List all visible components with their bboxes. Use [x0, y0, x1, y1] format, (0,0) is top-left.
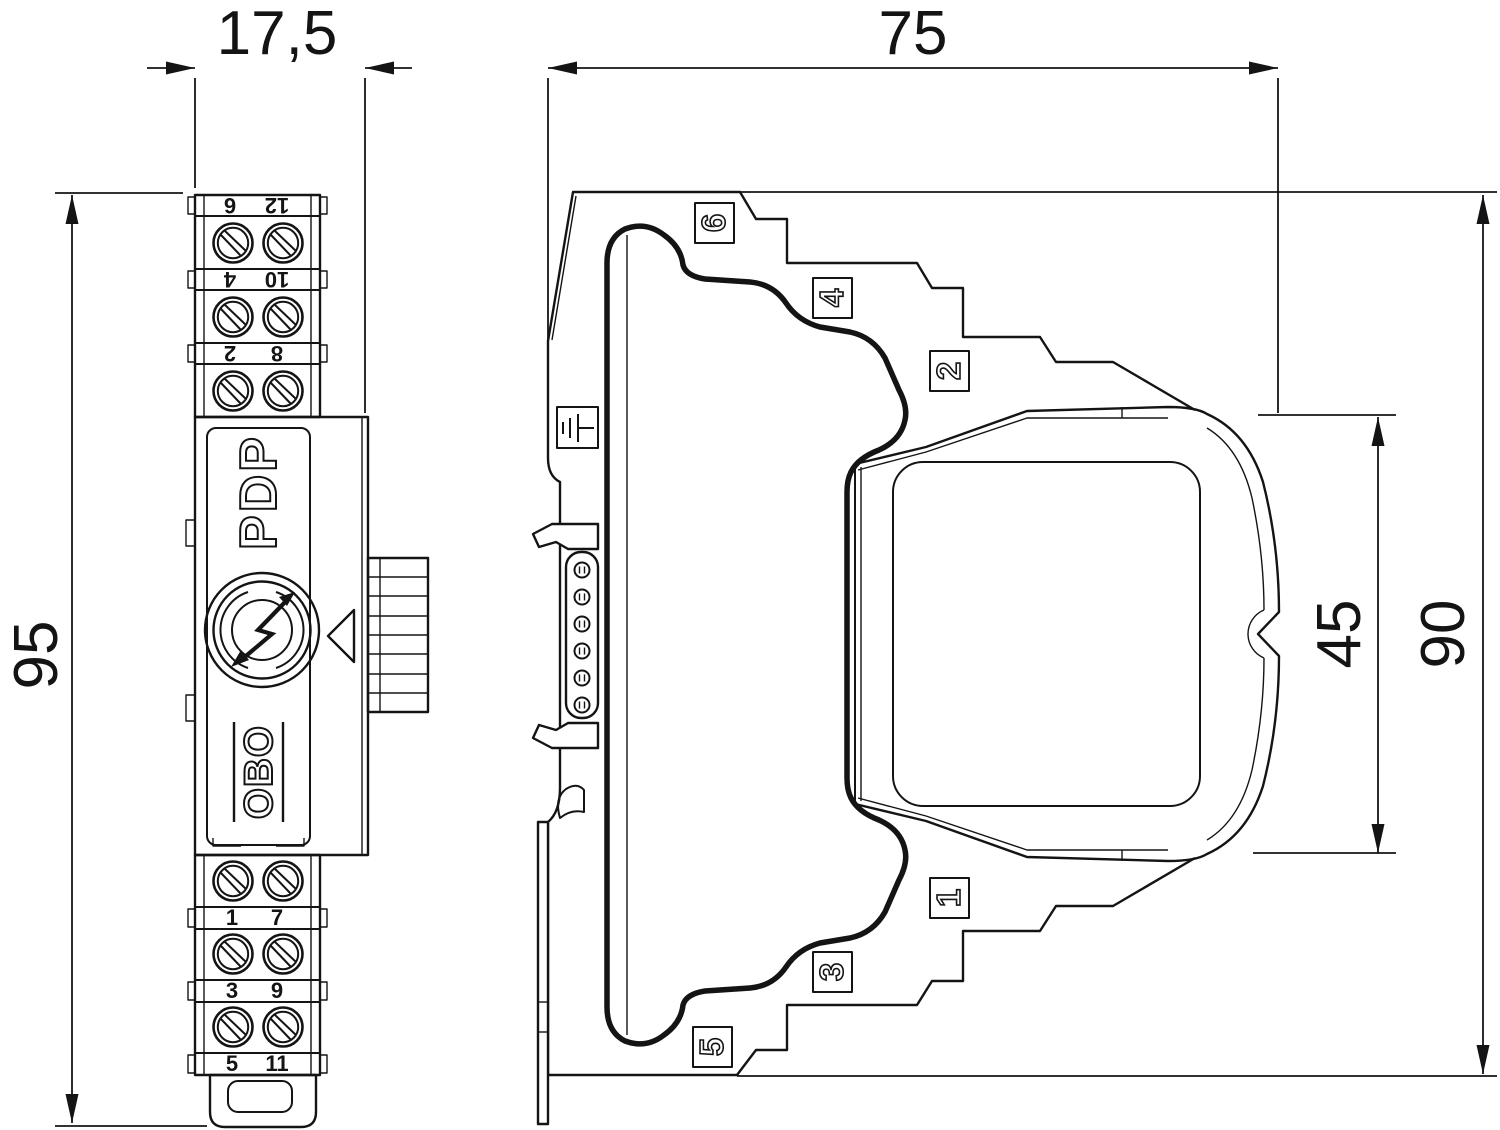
arrowhead: [66, 195, 79, 224]
terminal-marker-box: 1: [930, 878, 969, 918]
screw-icon: [264, 935, 303, 974]
terminal-label: 4: [223, 267, 236, 292]
screw-icon: [214, 298, 253, 337]
surge-arrow-logo-icon: [205, 573, 319, 687]
earth-icon: [557, 407, 598, 448]
terminal-marker-box: 3: [813, 952, 852, 992]
screw-icon: [214, 224, 253, 263]
screw-icon: [264, 224, 303, 263]
terminal-block-bottom: 1 7 3 9 5 11: [188, 855, 327, 1076]
terminal-label: 12: [265, 193, 289, 218]
dim-front-height: 95: [2, 193, 207, 1126]
terminal-label: 5: [226, 1051, 238, 1076]
side-view: 6 4 2 1 3 5: [533, 192, 1279, 1124]
marker-label: 3: [813, 963, 850, 981]
screw-icon: [214, 1008, 253, 1047]
plug-connector-teeth: [368, 558, 428, 712]
dim-label: 75: [879, 0, 948, 68]
din-clip-lower-icon: [533, 723, 598, 748]
marker-label: 5: [693, 1038, 730, 1056]
terminal-marker-box: 6: [695, 203, 734, 243]
front-view: 6 12 4 10 2 8: [186, 193, 428, 1127]
terminal-label: 1: [226, 905, 238, 930]
arrowhead: [365, 62, 394, 75]
terminal-label: 10: [265, 267, 289, 292]
marker-label: 4: [813, 288, 850, 307]
arrowhead: [166, 62, 195, 75]
arrowhead: [1372, 824, 1385, 853]
terminal-label: 2: [224, 341, 236, 366]
terminal-label: 9: [271, 978, 283, 1003]
terminal-label: 3: [226, 978, 238, 1003]
terminal-label: 11: [265, 1051, 288, 1076]
dim-side-height: 90: [737, 192, 1497, 1076]
terminal-marker-box: 4: [813, 278, 852, 318]
contact-strip: [566, 552, 598, 718]
device-body: PDP OBO: [186, 417, 428, 855]
screw-icon: [264, 372, 303, 411]
drawing-canvas: 6 12 4 10 2 8: [0, 0, 1500, 1130]
screw-icon: [214, 372, 253, 411]
dim-label: 17,5: [217, 0, 338, 68]
screw-icon: [264, 298, 303, 337]
screw-icon: [214, 935, 253, 974]
arrowhead: [1249, 62, 1278, 75]
marker-label: 2: [930, 362, 967, 380]
slide-latch: [538, 822, 548, 1124]
brand-text: OBO: [237, 725, 281, 819]
screw-icon: [264, 862, 303, 901]
terminal-label: 8: [271, 341, 283, 366]
housing-outline: [548, 192, 1195, 1075]
plug-module: [855, 407, 1279, 861]
dim-module-height: 45: [1253, 415, 1396, 853]
product-name-text: PDP: [230, 434, 288, 550]
arrowhead: [1477, 195, 1490, 224]
arrowhead: [1372, 417, 1385, 446]
arrowhead: [1477, 1045, 1490, 1074]
terminal-marker-box: 2: [930, 351, 969, 391]
arrowhead: [548, 62, 577, 75]
screw-icon: [214, 862, 253, 901]
arrowhead: [66, 1094, 79, 1123]
terminal-marker-box: 5: [693, 1027, 732, 1067]
terminal-block-top: 6 12 4 10 2 8: [188, 193, 327, 417]
marker-label: 1: [930, 889, 967, 907]
dim-label: 90: [1409, 600, 1478, 669]
dim-side-depth: 75: [548, 0, 1278, 413]
mounting-foot: [210, 1075, 316, 1127]
brand-logo: OBO: [234, 722, 283, 822]
din-clip-upper-icon: [533, 524, 598, 549]
terminal-label: 6: [224, 193, 236, 218]
terminal-label: 7: [271, 905, 283, 930]
dim-label: 45: [1305, 600, 1374, 669]
module-recess: [893, 462, 1200, 806]
dim-label: 95: [2, 621, 71, 690]
marker-label: 6: [695, 214, 732, 232]
technical-drawing: 6 12 4 10 2 8: [0, 0, 1500, 1130]
screw-icon: [264, 1008, 303, 1047]
release-lever: [558, 786, 584, 818]
direction-triangle-icon: [328, 610, 354, 662]
